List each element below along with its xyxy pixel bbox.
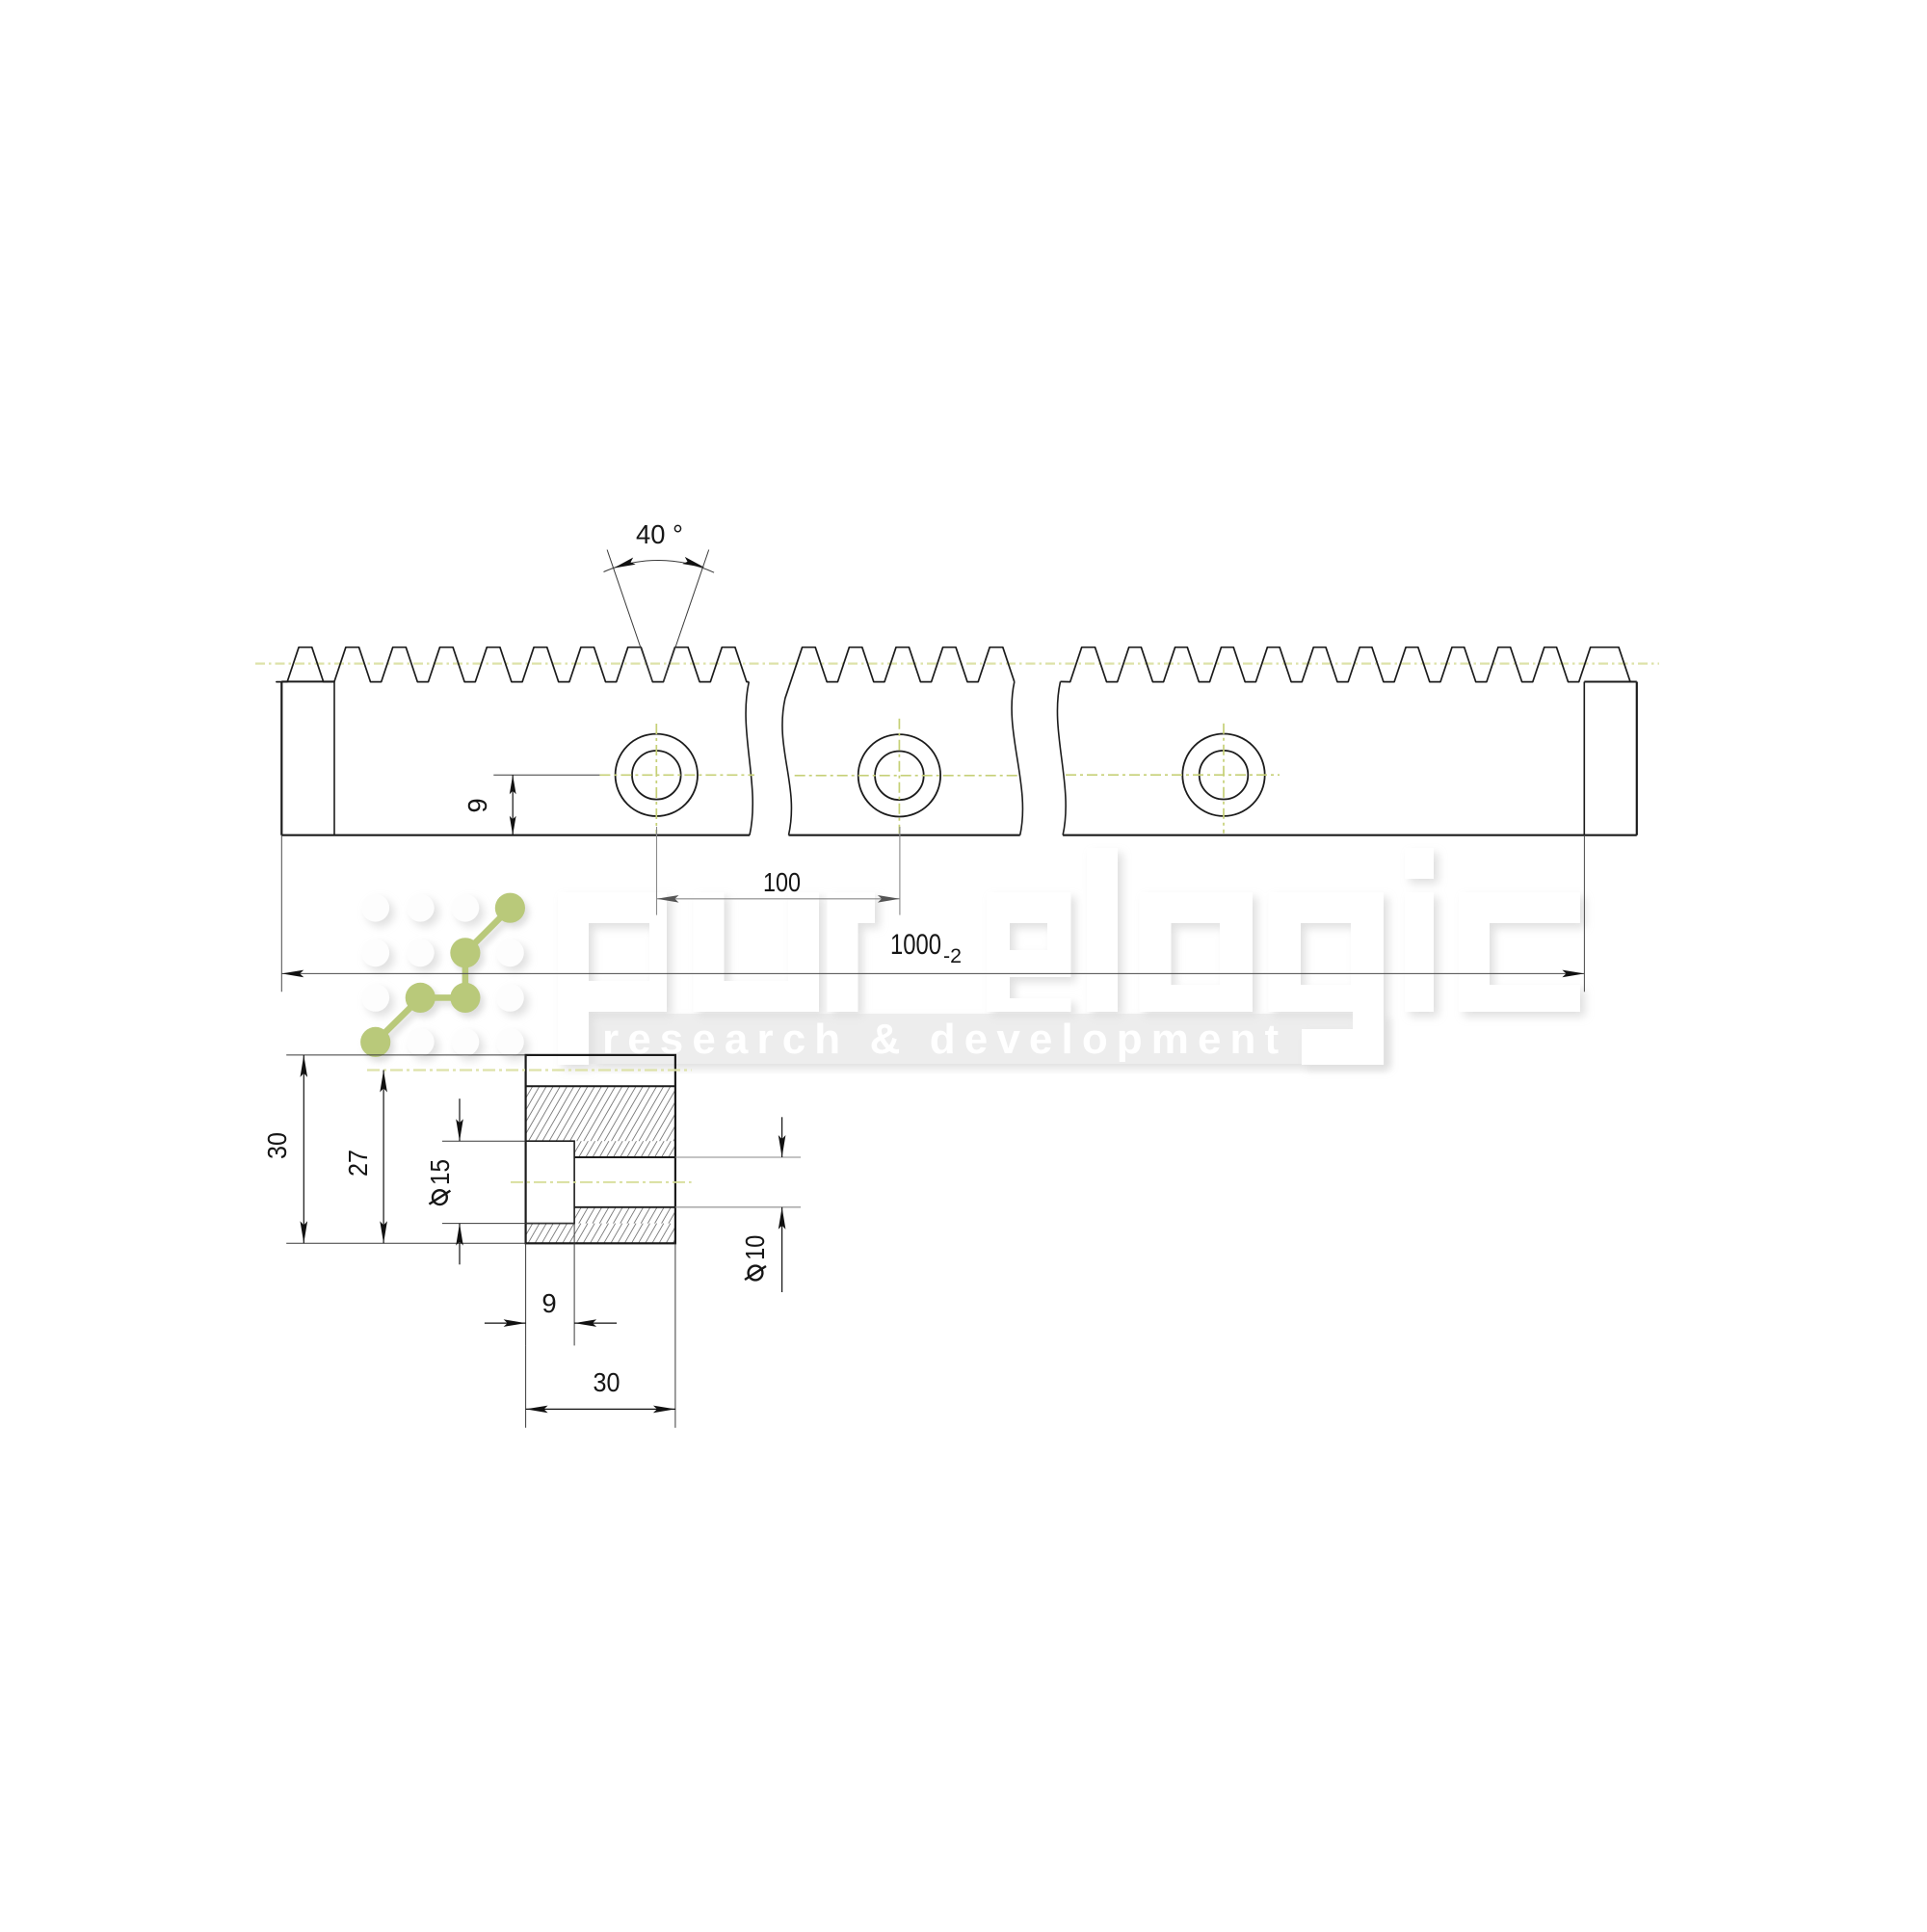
svg-text:9: 9 [462,798,492,812]
svg-text:research & development: research & development [602,1016,1287,1063]
svg-text:100: 100 [763,867,801,897]
svg-text:-2: -2 [943,945,962,967]
svg-text:1000: 1000 [890,929,941,961]
svg-text:9: 9 [541,1288,556,1318]
svg-text:30: 30 [262,1132,292,1159]
svg-text:27: 27 [343,1150,373,1177]
svg-text:15: 15 [425,1159,455,1185]
svg-text:30: 30 [594,1367,620,1397]
svg-text:10: 10 [740,1235,770,1260]
svg-text:40 °: 40 ° [636,519,683,549]
